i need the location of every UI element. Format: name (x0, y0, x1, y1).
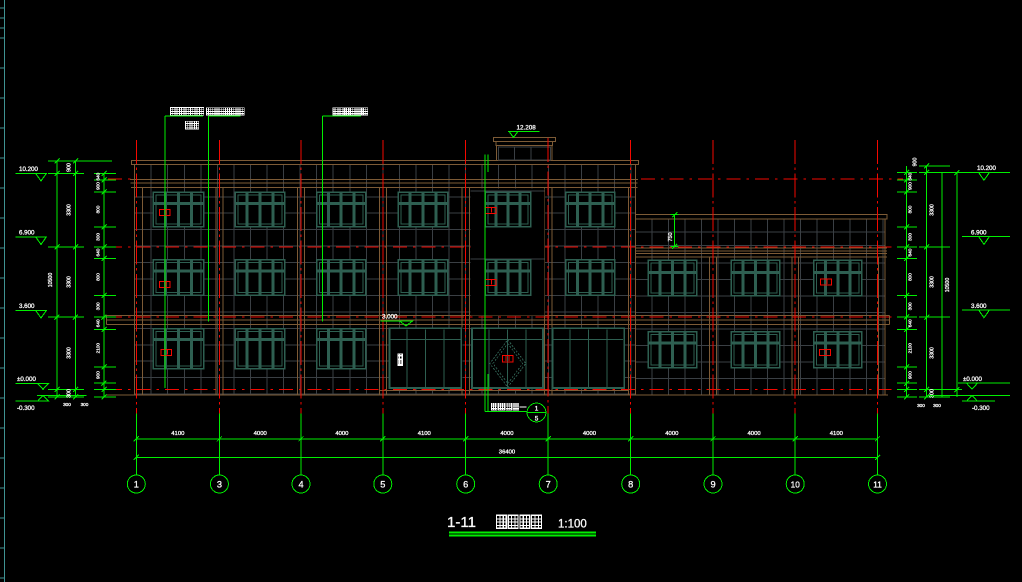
svg-text:300: 300 (908, 302, 913, 310)
svg-text:1:100: 1:100 (558, 519, 587, 531)
svg-text:4000: 4000 (665, 431, 679, 437)
svg-text:300: 300 (96, 233, 101, 241)
svg-text:3.600: 3.600 (971, 303, 987, 310)
svg-text:3300: 3300 (67, 276, 73, 288)
svg-text:300: 300 (917, 403, 925, 408)
svg-text:900: 900 (908, 182, 913, 190)
svg-text:900: 900 (913, 158, 919, 167)
svg-text:±0.000: ±0.000 (963, 376, 982, 383)
svg-text:300: 300 (67, 389, 73, 398)
svg-text:2100: 2100 (96, 343, 101, 354)
svg-text:10.200: 10.200 (19, 166, 38, 173)
svg-text:300: 300 (96, 302, 101, 310)
svg-text:750: 750 (668, 233, 674, 242)
svg-text:800: 800 (96, 205, 101, 213)
svg-text:640: 640 (908, 319, 913, 327)
svg-text:9: 9 (710, 479, 715, 489)
svg-text:1: 1 (134, 479, 139, 489)
svg-text:12.208: 12.208 (517, 124, 537, 131)
svg-text:640: 640 (908, 248, 913, 256)
svg-text:640: 640 (96, 319, 101, 327)
svg-text:4100: 4100 (171, 431, 185, 437)
svg-text:640: 640 (96, 172, 101, 180)
svg-text:300: 300 (908, 233, 913, 241)
svg-text:10.200: 10.200 (977, 165, 996, 172)
svg-text:6: 6 (463, 479, 468, 489)
svg-text:1-11: 1-11 (447, 514, 476, 531)
svg-text:4100: 4100 (418, 431, 432, 437)
svg-text:4000: 4000 (335, 431, 349, 437)
svg-text:10500: 10500 (945, 278, 951, 293)
svg-text:3300: 3300 (930, 276, 936, 288)
svg-text:900: 900 (908, 371, 913, 379)
svg-text:300: 300 (933, 403, 941, 408)
svg-text:3300: 3300 (930, 204, 936, 216)
svg-text:3.600: 3.600 (19, 303, 35, 310)
svg-text:7: 7 (546, 479, 551, 489)
svg-text:4000: 4000 (748, 431, 762, 437)
svg-text:900: 900 (96, 371, 101, 379)
svg-text:3.000: 3.000 (382, 314, 398, 321)
svg-text:10: 10 (791, 480, 801, 489)
svg-text:800: 800 (96, 273, 101, 281)
svg-text:800: 800 (908, 205, 913, 213)
svg-text:3300: 3300 (930, 347, 936, 359)
svg-text:5: 5 (380, 479, 385, 489)
svg-text:8: 8 (628, 479, 633, 489)
svg-text:11: 11 (873, 480, 882, 489)
svg-text:-0.300: -0.300 (17, 405, 35, 412)
svg-text:640: 640 (96, 248, 101, 256)
svg-text:3300: 3300 (67, 347, 73, 359)
svg-text:300: 300 (930, 389, 936, 398)
svg-text:6.900: 6.900 (19, 230, 35, 237)
svg-text:640: 640 (908, 172, 913, 180)
svg-text:5: 5 (535, 415, 539, 422)
svg-text:900: 900 (96, 182, 101, 190)
svg-text:-0.300: -0.300 (972, 405, 990, 412)
svg-text:4000: 4000 (254, 431, 268, 437)
svg-text:4000: 4000 (583, 431, 597, 437)
svg-text:4100: 4100 (830, 431, 844, 437)
svg-text:3300: 3300 (67, 204, 73, 216)
svg-text:300: 300 (63, 402, 71, 407)
svg-text:10500: 10500 (48, 273, 54, 288)
svg-text:900: 900 (67, 163, 73, 172)
svg-text:300: 300 (81, 402, 89, 407)
svg-text:2100: 2100 (908, 343, 913, 354)
svg-text:1: 1 (535, 406, 539, 413)
svg-text:6.900: 6.900 (971, 229, 987, 236)
svg-text:4000: 4000 (500, 431, 514, 437)
svg-text:36400: 36400 (499, 449, 516, 455)
svg-text:±0.000: ±0.000 (17, 376, 36, 383)
svg-text:800: 800 (908, 273, 913, 281)
svg-text:3: 3 (217, 479, 222, 489)
svg-text:4: 4 (298, 479, 303, 489)
